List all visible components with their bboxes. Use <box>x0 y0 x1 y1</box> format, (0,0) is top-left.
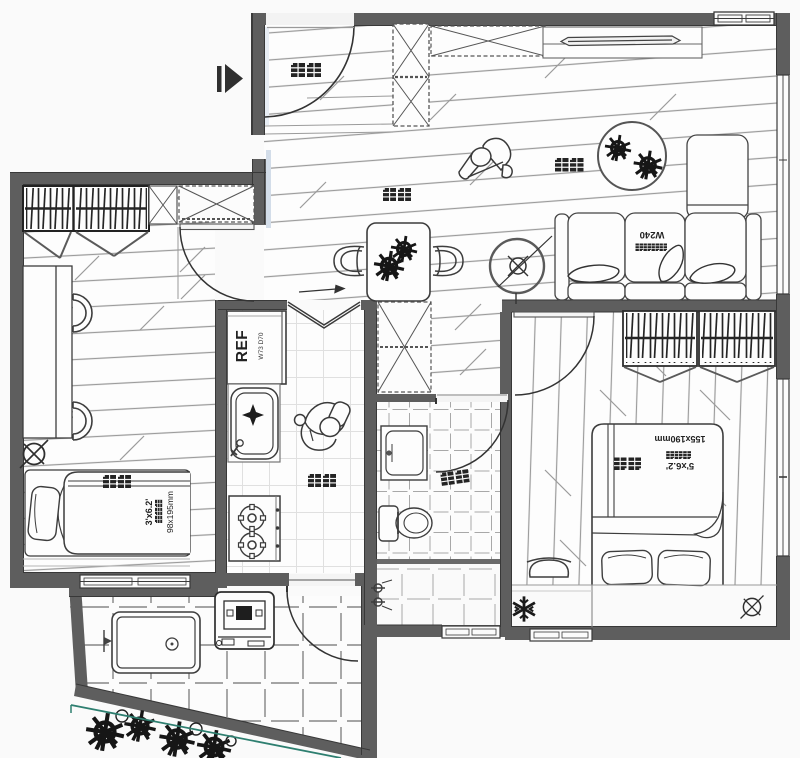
svg-text:98x195mm: 98x195mm <box>165 491 175 533</box>
svg-text:3'x6.2': 3'x6.2' <box>144 499 154 526</box>
svg-text:W73 D70: W73 D70 <box>258 332 265 359</box>
svg-text:REF: REF <box>234 330 251 363</box>
svg-text:155x190mm: 155x190mm <box>654 434 705 444</box>
svg-text:5'x6.2': 5'x6.2' <box>666 460 694 471</box>
svg-text:W240: W240 <box>640 229 665 240</box>
